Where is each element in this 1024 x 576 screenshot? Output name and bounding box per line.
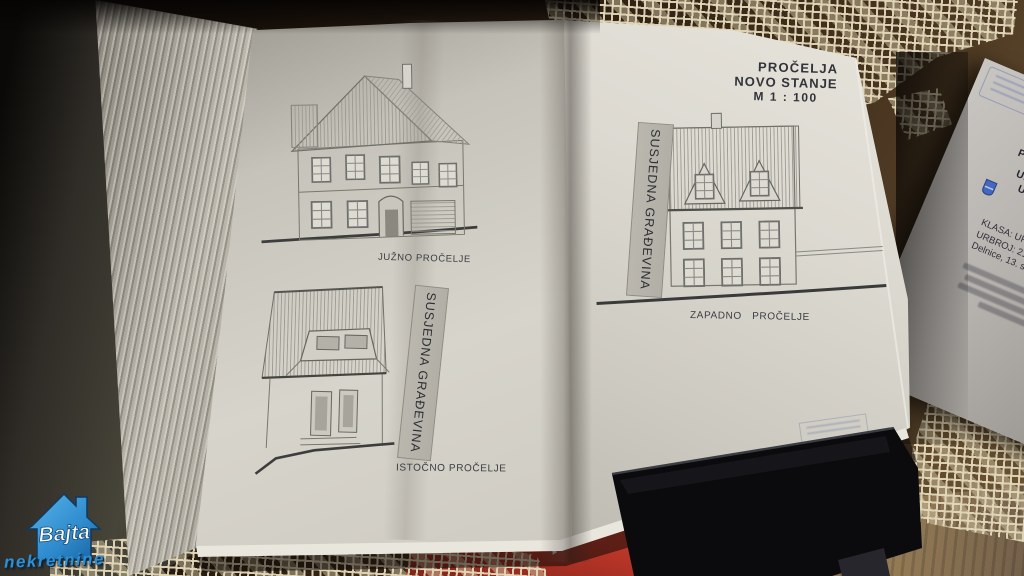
bajta-tagline: nekretnine	[4, 549, 106, 573]
photo-scene: AK REPUBLIKA HRVATSKA PRIMORSKO-GORANSKA…	[0, 0, 1024, 576]
bajta-logo-text: Bajta	[38, 520, 91, 547]
black-phone	[0, 0, 1024, 576]
